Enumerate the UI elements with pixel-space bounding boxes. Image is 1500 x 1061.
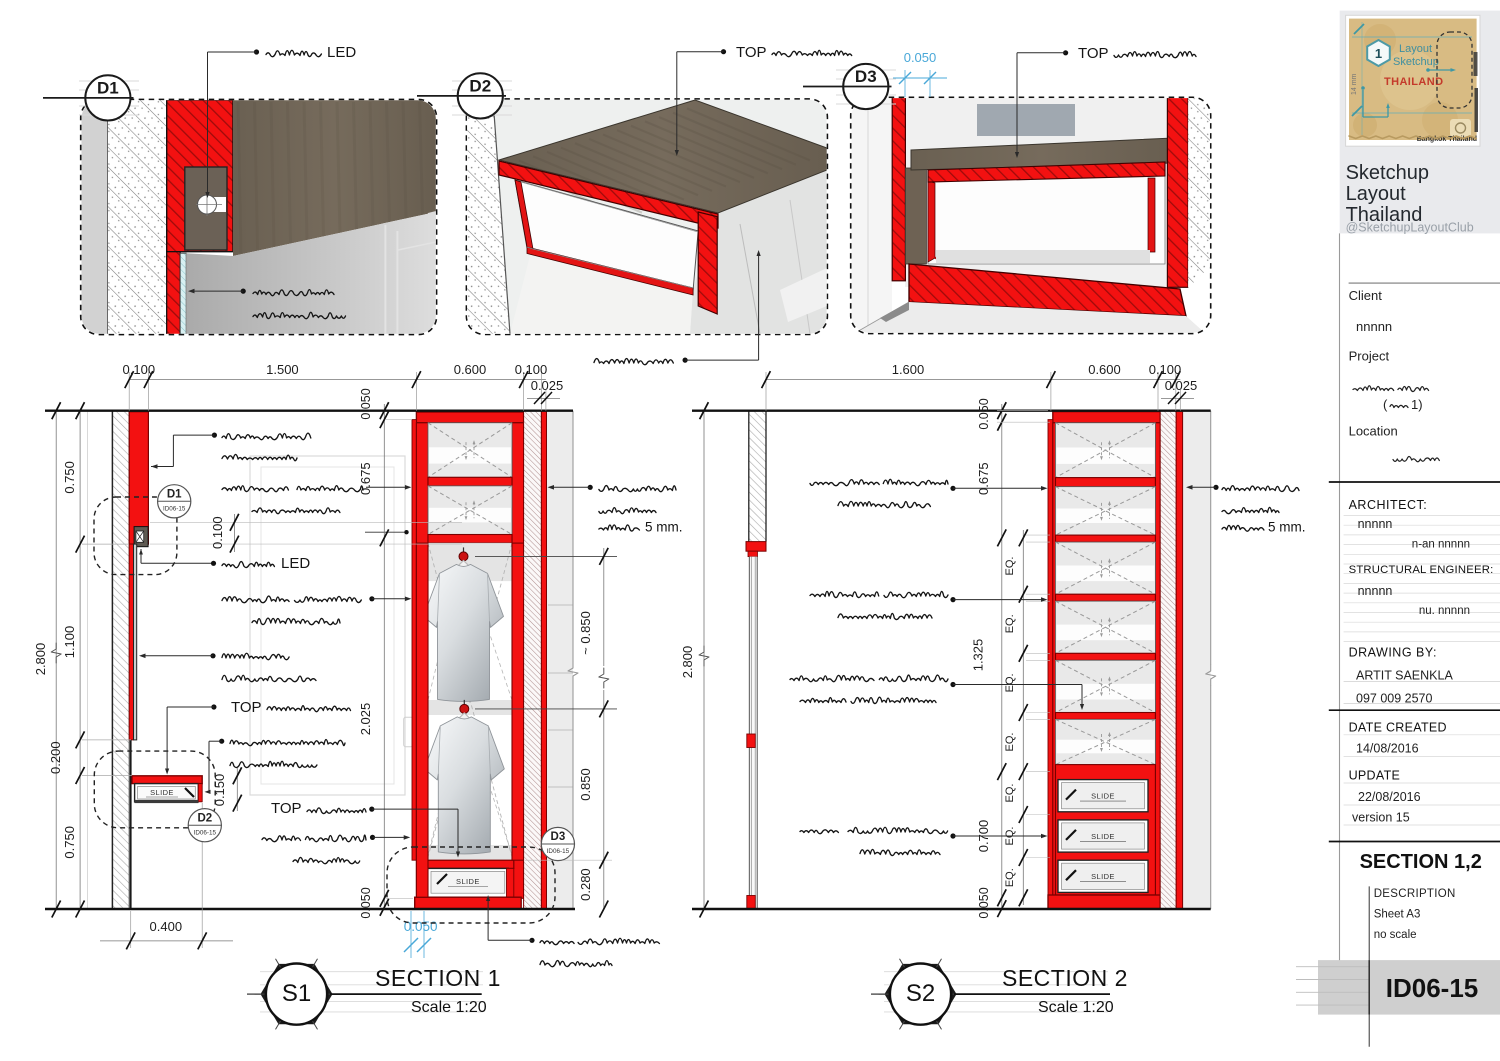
svg-text:ARTIT SAENKLA: ARTIT SAENKLA xyxy=(1356,669,1453,683)
svg-text:0.050: 0.050 xyxy=(977,398,991,429)
svg-text:0.600: 0.600 xyxy=(454,362,487,377)
svg-text:nu. nnnnn: nu. nnnnn xyxy=(1419,605,1470,617)
svg-text:DATE CREATED: DATE CREATED xyxy=(1349,721,1447,735)
svg-text:LED: LED xyxy=(327,44,356,61)
svg-text:0.280: 0.280 xyxy=(578,868,593,901)
svg-text:Scale 1:20: Scale 1:20 xyxy=(411,999,487,1016)
svg-text:DESCRIPTION: DESCRIPTION xyxy=(1374,888,1456,900)
svg-text:TOP: TOP xyxy=(736,44,767,61)
svg-text:THAILAND: THAILAND xyxy=(1384,76,1443,88)
svg-text:ID06-15: ID06-15 xyxy=(1386,973,1479,1003)
svg-text:@SketchupLayoutClub: @SketchupLayoutClub xyxy=(1346,221,1474,235)
svg-text:0.600: 0.600 xyxy=(1088,362,1121,377)
svg-text:Location: Location xyxy=(1349,423,1398,438)
svg-text:Sketchup: Sketchup xyxy=(1393,56,1439,68)
svg-text:UPDATE: UPDATE xyxy=(1349,768,1401,782)
svg-text:SECTION 2: SECTION 2 xyxy=(1002,965,1128,991)
svg-text:0.850: 0.850 xyxy=(578,768,593,801)
svg-text:ARCHITECT:: ARCHITECT: xyxy=(1349,498,1428,512)
svg-text:1.100: 1.100 xyxy=(62,626,77,659)
svg-text:n-an nnnnn: n-an nnnnn xyxy=(1412,539,1470,551)
svg-text:0.400: 0.400 xyxy=(150,919,183,934)
svg-text:EQ.: EQ. xyxy=(1004,614,1016,633)
svg-text:D2: D2 xyxy=(469,77,491,96)
svg-text:0.100: 0.100 xyxy=(1149,362,1182,377)
svg-text:Layout: Layout xyxy=(1346,183,1406,205)
svg-text:5 mm.: 5 mm. xyxy=(1268,520,1306,535)
svg-text:1): 1) xyxy=(1411,397,1423,412)
svg-text:0.050: 0.050 xyxy=(359,887,373,918)
svg-text:5 mm.: 5 mm. xyxy=(645,520,683,535)
svg-text:EQ.: EQ. xyxy=(1004,557,1016,576)
svg-text:0.100: 0.100 xyxy=(123,362,156,377)
svg-text:LED: LED xyxy=(281,555,310,572)
svg-text:EQ.: EQ. xyxy=(1004,733,1016,752)
svg-text:TOP: TOP xyxy=(271,800,302,817)
svg-text:097 009 2570: 097 009 2570 xyxy=(1356,692,1433,706)
svg-text:2.025: 2.025 xyxy=(358,703,373,736)
svg-text:Sheet A3: Sheet A3 xyxy=(1374,909,1421,921)
svg-text:0.675: 0.675 xyxy=(976,462,991,495)
svg-text:SLIDE: SLIDE xyxy=(1091,872,1115,881)
svg-text:1.600: 1.600 xyxy=(892,362,925,377)
svg-text:SECTION 1,2: SECTION 1,2 xyxy=(1360,851,1482,873)
svg-text:SLIDE: SLIDE xyxy=(1091,832,1115,841)
svg-text:0.100: 0.100 xyxy=(515,362,548,377)
svg-text:SLIDE: SLIDE xyxy=(150,788,174,797)
svg-text:Layout: Layout xyxy=(1399,43,1432,55)
svg-text:Scale 1:20: Scale 1:20 xyxy=(1038,999,1114,1016)
svg-text:~ 0.850: ~ 0.850 xyxy=(578,611,593,655)
svg-text:14 mm: 14 mm xyxy=(1351,73,1358,95)
svg-text:0.025: 0.025 xyxy=(1165,378,1198,393)
svg-text:version 15: version 15 xyxy=(1352,810,1410,824)
svg-text:D1: D1 xyxy=(167,489,182,501)
svg-text:D1: D1 xyxy=(97,79,119,98)
svg-text:EQ.: EQ. xyxy=(1004,673,1016,692)
svg-text:nnnnn: nnnnn xyxy=(1358,517,1393,531)
svg-text:0.100: 0.100 xyxy=(210,516,225,549)
svg-text:Client: Client xyxy=(1349,288,1383,303)
svg-text:0.050: 0.050 xyxy=(977,887,991,918)
svg-text:2.800: 2.800 xyxy=(33,643,48,676)
svg-text:TOP: TOP xyxy=(1078,45,1109,62)
svg-text:S1: S1 xyxy=(282,980,311,1007)
svg-text:STRUCTURAL ENGINEER:: STRUCTURAL ENGINEER: xyxy=(1349,564,1494,576)
svg-text:Project: Project xyxy=(1349,349,1390,364)
svg-text:2.800: 2.800 xyxy=(680,646,695,679)
svg-text:EQ.: EQ. xyxy=(1004,784,1016,803)
svg-text:22/08/2016: 22/08/2016 xyxy=(1358,790,1421,804)
svg-text:nnnnn: nnnnn xyxy=(1358,584,1393,598)
svg-text:1.500: 1.500 xyxy=(266,362,299,377)
svg-text:D2: D2 xyxy=(197,812,212,824)
svg-text:EQ.: EQ. xyxy=(1004,868,1016,887)
svg-text:1.325: 1.325 xyxy=(971,639,986,672)
svg-text:0.750: 0.750 xyxy=(62,826,77,859)
svg-text:0.050: 0.050 xyxy=(404,919,438,934)
svg-text:SLIDE: SLIDE xyxy=(456,877,480,886)
svg-text:nnnnn: nnnnn xyxy=(1356,319,1392,334)
svg-text:0.150: 0.150 xyxy=(212,774,227,807)
svg-text:ID06-15: ID06-15 xyxy=(194,829,217,836)
svg-text:1: 1 xyxy=(1375,46,1382,61)
svg-text:SLIDE: SLIDE xyxy=(1091,792,1115,801)
svg-text:TOP: TOP xyxy=(231,699,262,716)
svg-text:14/08/2016: 14/08/2016 xyxy=(1356,741,1419,755)
svg-text:0.050: 0.050 xyxy=(359,388,373,419)
svg-text:Sketchup: Sketchup xyxy=(1346,162,1429,184)
svg-text:SECTION 1: SECTION 1 xyxy=(375,965,501,991)
svg-text:DRAWING BY:: DRAWING BY: xyxy=(1349,646,1437,660)
svg-text:0.200: 0.200 xyxy=(48,741,63,774)
svg-text:D3: D3 xyxy=(551,831,566,843)
svg-text:ID06-15: ID06-15 xyxy=(547,848,570,855)
svg-text:0.025: 0.025 xyxy=(531,378,564,393)
svg-text:ID06-15: ID06-15 xyxy=(163,506,186,513)
svg-text:D3: D3 xyxy=(855,67,877,86)
svg-text:0.050: 0.050 xyxy=(904,50,937,65)
svg-text:no scale: no scale xyxy=(1374,929,1417,941)
svg-text:S2: S2 xyxy=(906,980,935,1007)
svg-text:0.750: 0.750 xyxy=(62,461,77,494)
svg-text:(: ( xyxy=(1383,397,1388,412)
